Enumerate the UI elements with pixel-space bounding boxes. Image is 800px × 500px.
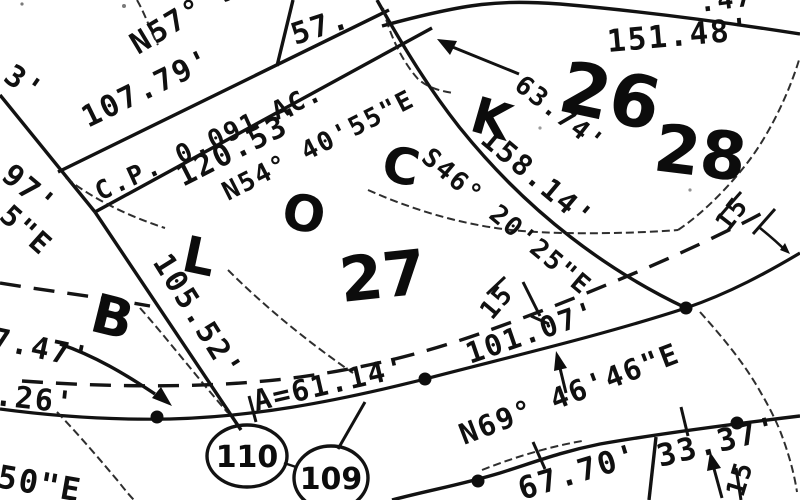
parcel-number-109: 109	[300, 462, 363, 497]
block-letter-c: C	[378, 135, 424, 198]
arrow-3337-shaft	[713, 465, 722, 498]
survey-point-dot	[680, 302, 693, 315]
plat-map-canvas: 110 109 3' 97' 5"E 7.47' .26' 50"E .47' …	[0, 0, 800, 500]
arrowhead-icon	[780, 243, 790, 254]
lot-number-27: 27	[336, 235, 429, 317]
arc-length-a-61-14: A=61.14'	[250, 350, 409, 418]
edge-fragment-bearing-50e: 50"E	[0, 457, 85, 500]
scan-speck	[20, 2, 23, 5]
block-letter-l: L	[178, 225, 221, 288]
arrow-63-74-shaft	[450, 46, 519, 74]
survey-point-dot	[472, 475, 485, 488]
plat-map-scan: 110 109 3' 97' 5"E 7.47' .26' 50"E .47' …	[0, 0, 800, 500]
hatch-line-mid-left	[228, 270, 353, 373]
edge-fragment-distance-26: .26'	[0, 378, 77, 421]
arrowhead-icon	[437, 39, 457, 55]
arrowhead-icon	[152, 387, 172, 406]
edge-fragment-distance-747: 7.47'	[0, 322, 94, 377]
distance-67-70: 67.70'	[514, 437, 643, 500]
survey-point-dot	[151, 411, 164, 424]
width-15-bottom: 15	[721, 458, 760, 500]
leader-circle-109	[338, 402, 365, 449]
distance-57: 57.	[287, 1, 355, 53]
block-letter-b: B	[85, 281, 140, 352]
scan-speck	[538, 126, 541, 129]
arrowhead-icon	[554, 351, 567, 371]
width-15-mid: 15	[474, 279, 520, 325]
survey-point-dot	[419, 373, 432, 386]
parcel-number-110: 110	[216, 440, 279, 475]
tick-15-mid-bar	[523, 282, 540, 316]
distance-151-48: 151.48'	[606, 11, 753, 59]
scan-speck	[122, 4, 126, 8]
block-letter-o: O	[278, 182, 330, 247]
lot-number-28: 28	[650, 109, 751, 197]
